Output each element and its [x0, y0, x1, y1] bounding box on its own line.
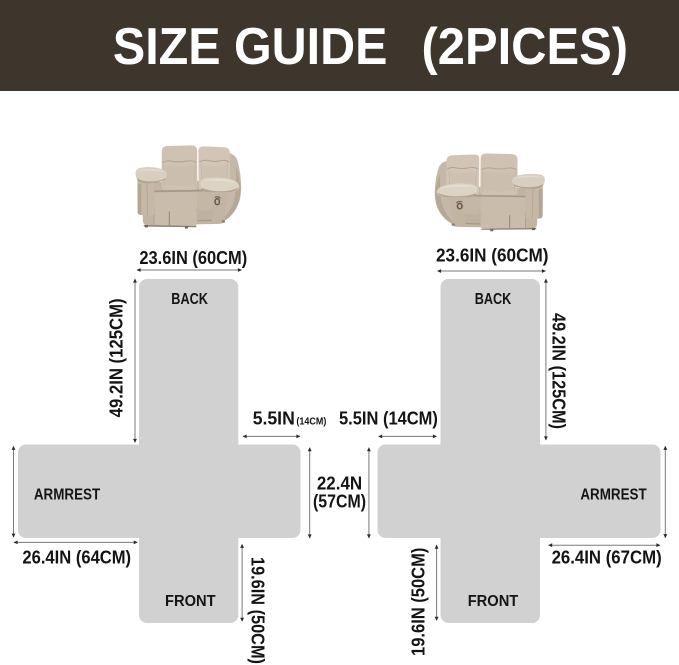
svg-text:19.6IN (50CM): 19.6IN (50CM) [408, 548, 429, 656]
svg-text:26.4IN (64CM): 26.4IN (64CM) [22, 547, 131, 568]
svg-text:FRONT: FRONT [468, 593, 519, 610]
svg-text:19.6IN (50CM): 19.6IN (50CM) [247, 557, 268, 664]
svg-text:(57CM): (57CM) [313, 490, 366, 511]
svg-text:5.5IN (14CM): 5.5IN (14CM) [339, 408, 438, 429]
svg-text:(2PICES): (2PICES) [422, 18, 629, 76]
svg-text:23.6IN (60CM): 23.6IN (60CM) [436, 245, 549, 266]
svg-text:BACK: BACK [475, 291, 512, 308]
svg-text:FRONT: FRONT [165, 593, 216, 610]
svg-text:ARMREST: ARMREST [34, 486, 100, 503]
svg-text:49.2IN (125CM): 49.2IN (125CM) [106, 298, 127, 417]
svg-text:5.5IN: 5.5IN [253, 408, 295, 429]
svg-text:(14CM): (14CM) [296, 416, 326, 427]
svg-text:26.4IN (67CM): 26.4IN (67CM) [552, 547, 662, 568]
svg-text:ARMREST: ARMREST [580, 486, 646, 503]
svg-text:SIZE GUIDE: SIZE GUIDE [113, 18, 388, 76]
svg-text:23.6IN (60CM): 23.6IN (60CM) [139, 247, 247, 268]
svg-text:49.2IN (125CM): 49.2IN (125CM) [549, 313, 570, 429]
svg-text:BACK: BACK [171, 291, 208, 308]
